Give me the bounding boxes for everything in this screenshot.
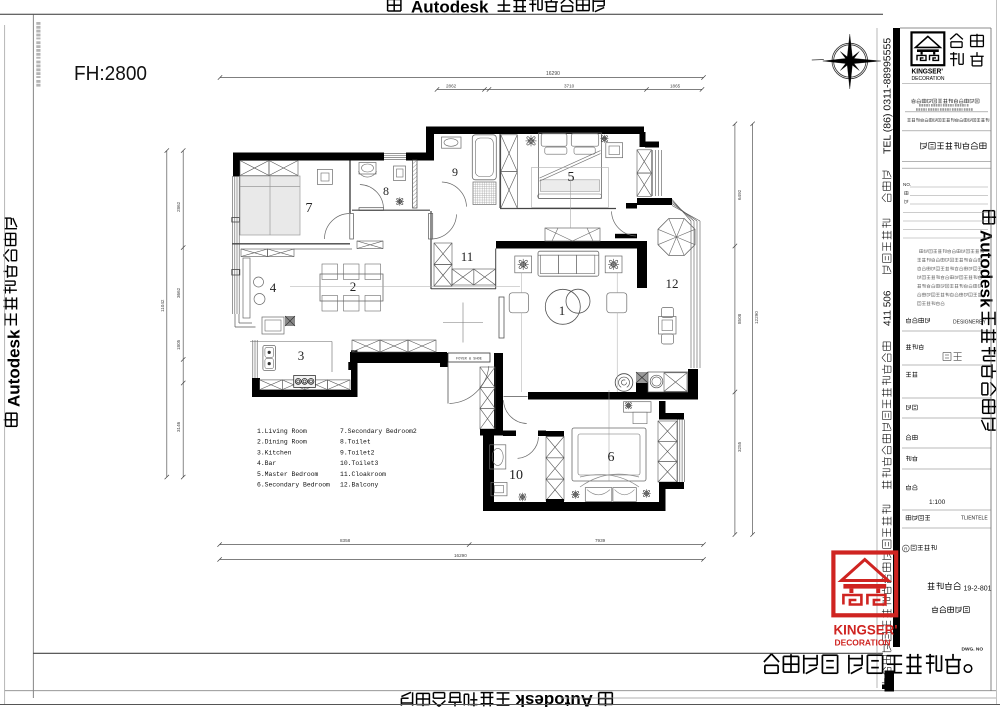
- svg-text:Autodesk: Autodesk: [5, 329, 24, 407]
- svg-text:KINGSER': KINGSER': [912, 67, 944, 76]
- svg-text:7: 7: [306, 201, 313, 216]
- svg-text:411 506: 411 506: [882, 290, 893, 326]
- svg-text:12.Balcony: 12.Balcony: [340, 482, 379, 489]
- svg-text:9.Toilet2: 9.Toilet2: [340, 449, 375, 456]
- svg-text:DWG. NO: DWG. NO: [962, 647, 984, 653]
- svg-text:11: 11: [461, 249, 474, 264]
- svg-text:TLIENTELE: TLIENTELE: [961, 515, 988, 521]
- svg-text:DECORATION: DECORATION: [912, 76, 945, 82]
- svg-text:16290: 16290: [454, 553, 467, 558]
- svg-text:10: 10: [509, 468, 523, 483]
- svg-text:8: 8: [383, 184, 389, 198]
- svg-text:2862: 2862: [446, 83, 457, 88]
- svg-text:1:100: 1:100: [929, 499, 946, 506]
- svg-text:1.Living Room: 1.Living Room: [257, 428, 307, 435]
- svg-text:10.Toilet3: 10.Toilet3: [340, 460, 379, 467]
- svg-text:3662: 3662: [176, 287, 181, 298]
- svg-text:FOYER & SHOE: FOYER & SHOE: [456, 358, 482, 362]
- svg-text:TEL (86) 0311-88995555: TEL (86) 0311-88995555: [881, 38, 893, 154]
- svg-text:5.Master Bedroom: 5.Master Bedroom: [257, 471, 319, 478]
- svg-text:8.Toilet: 8.Toilet: [340, 439, 371, 446]
- svg-text:Autodesk: Autodesk: [977, 230, 996, 308]
- svg-text:7.Secondary Bedroom2: 7.Secondary Bedroom2: [340, 428, 417, 435]
- svg-text:NO.: NO.: [903, 182, 911, 187]
- svg-text:7939: 7939: [595, 538, 606, 543]
- svg-text:12290: 12290: [754, 311, 759, 324]
- svg-text:12: 12: [666, 276, 679, 291]
- svg-text:19-2-801: 19-2-801: [964, 586, 992, 593]
- svg-text:2.Dining Room: 2.Dining Room: [257, 439, 307, 446]
- svg-text:1865: 1865: [670, 83, 681, 88]
- svg-text:4.Bar: 4.Bar: [257, 460, 276, 467]
- svg-text:3146: 3146: [176, 421, 181, 432]
- svg-text:16290: 16290: [546, 71, 560, 77]
- svg-text:9: 9: [452, 165, 458, 179]
- svg-text:DECORATION: DECORATION: [835, 639, 891, 648]
- svg-text:6.Secondary Bedroom: 6.Secondary Bedroom: [257, 482, 330, 489]
- svg-text:6: 6: [608, 450, 615, 465]
- svg-text:11042: 11042: [160, 299, 165, 312]
- svg-text:3.Kitchen: 3.Kitchen: [257, 449, 292, 456]
- svg-text:3710: 3710: [564, 83, 575, 88]
- svg-text:KINGSER': KINGSER': [834, 622, 898, 638]
- svg-text:1805: 1805: [176, 339, 181, 350]
- svg-text:5: 5: [568, 170, 575, 185]
- svg-text:FH:2800: FH:2800: [74, 62, 147, 85]
- svg-text:8358: 8358: [340, 538, 351, 543]
- svg-text:DESIGNERBY: DESIGNERBY: [953, 319, 986, 325]
- svg-text:1: 1: [559, 303, 566, 318]
- svg-text:4: 4: [270, 280, 277, 295]
- svg-text:2862: 2862: [176, 201, 181, 212]
- svg-text:11.Cloakroom: 11.Cloakroom: [340, 471, 386, 478]
- svg-text:6492: 6492: [737, 189, 742, 200]
- svg-text:3: 3: [298, 348, 305, 363]
- svg-text:8508: 8508: [737, 313, 742, 324]
- svg-text:3255: 3255: [737, 441, 742, 452]
